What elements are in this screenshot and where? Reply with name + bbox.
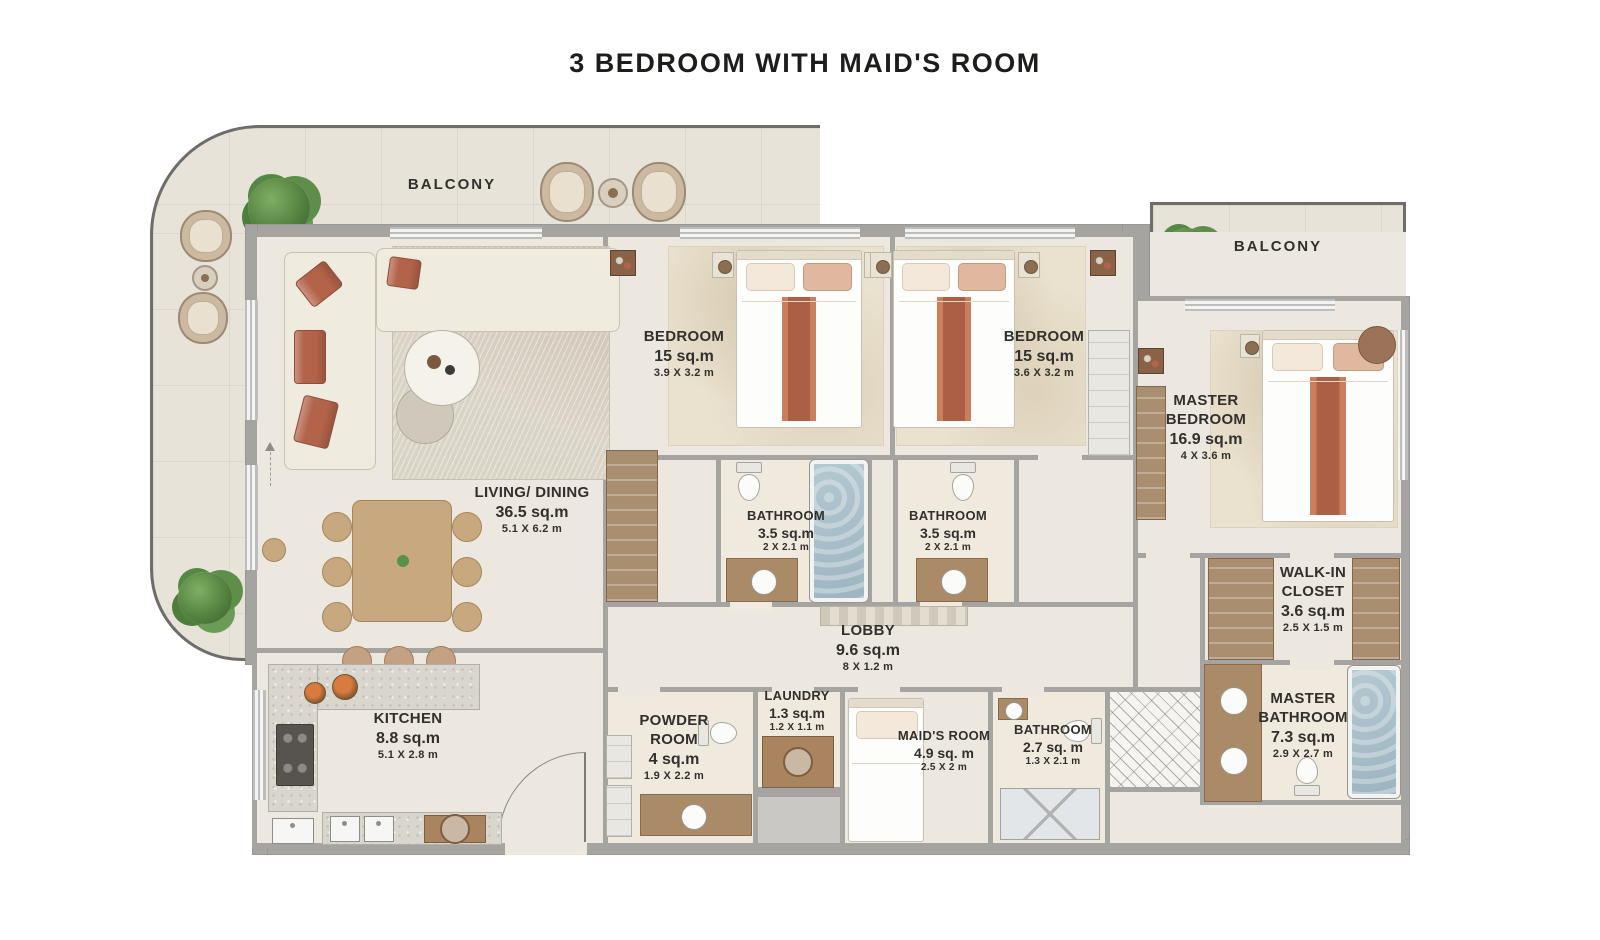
cushion bbox=[294, 330, 326, 384]
room-label-laundry: LAUNDRY1.3 sq.m1.2 X 1.1 m bbox=[764, 688, 829, 733]
nightstand bbox=[712, 252, 734, 278]
room-label-maids-bathroom: BATHROOM2.7 sq. m1.3 X 2.1 m bbox=[1014, 722, 1092, 767]
small-sink bbox=[998, 698, 1028, 720]
cabinet bbox=[1088, 330, 1130, 456]
dining-chair bbox=[322, 602, 352, 632]
wicker-chair bbox=[632, 162, 686, 222]
dining-chair bbox=[322, 557, 352, 587]
door-opening bbox=[618, 685, 660, 697]
wicker-chair bbox=[540, 162, 594, 222]
dining-chair bbox=[452, 602, 482, 632]
window bbox=[245, 300, 258, 420]
exit-arrow-icon bbox=[265, 442, 275, 451]
room-label-maids: MAID'S ROOM4.9 sq. m2.5 X 2 m bbox=[898, 728, 990, 773]
shelf-decor bbox=[1138, 348, 1164, 374]
double-bed-1 bbox=[736, 250, 862, 428]
utility-cabinet bbox=[606, 785, 632, 837]
toilet-icon bbox=[736, 462, 762, 500]
room-label-bedroom-2: BEDROOM15 sq.m3.6 X 3.2 m bbox=[1004, 328, 1084, 379]
appliance bbox=[272, 818, 314, 844]
vanity bbox=[916, 558, 988, 602]
room-label-lobby: LOBBY9.6 sq.m8 X 1.2 m bbox=[836, 622, 900, 673]
nightstand bbox=[1018, 252, 1040, 278]
service-shaft-hatch bbox=[1105, 687, 1205, 792]
dining-chair bbox=[452, 557, 482, 587]
window bbox=[905, 227, 1075, 239]
room-label-balcony-main: BALCONY bbox=[408, 176, 496, 195]
round-armchair bbox=[1358, 326, 1396, 364]
shelf-decor bbox=[610, 250, 636, 276]
floor-plan: 3 BEDROOM WITH MAID'S ROOM bbox=[0, 0, 1600, 940]
vanity bbox=[726, 558, 798, 602]
cooktop bbox=[276, 724, 314, 786]
room-label-bedroom-1: BEDROOM15 sq.m3.9 X 3.2 m bbox=[644, 328, 724, 379]
room-label-kitchen: KITCHEN8.8 sq.m5.1 X 2.8 m bbox=[374, 710, 443, 761]
room-label-walk-in-closet: WALK-IN CLOSET3.6 sq.m2.5 X 1.5 m bbox=[1258, 564, 1368, 634]
window bbox=[390, 227, 542, 239]
plant-icon bbox=[178, 572, 232, 624]
centerpiece bbox=[397, 555, 409, 567]
toilet-icon bbox=[950, 462, 976, 500]
shower-tray bbox=[1000, 788, 1100, 840]
fruit-bowl bbox=[332, 674, 358, 700]
room-label-master-bathroom: MASTER BATHROOM7.3 sq.m2.9 X 2.7 m bbox=[1243, 690, 1363, 760]
hall-master-wing bbox=[1133, 553, 1205, 692]
wardrobe bbox=[606, 450, 658, 602]
window bbox=[245, 465, 258, 570]
door-opening bbox=[1002, 685, 1044, 697]
cutting-board bbox=[424, 815, 486, 843]
room-label-master-bedroom: MASTER BEDROOM16.9 sq.m4 X 3.6 m bbox=[1151, 392, 1261, 462]
laundry-closet bbox=[753, 792, 845, 848]
fruit-bowl bbox=[304, 682, 326, 704]
room-label-bathroom-1: BATHROOM3.5 sq.m2 X 2.1 m bbox=[747, 508, 825, 553]
tray-item bbox=[445, 365, 455, 375]
exit-path-line bbox=[270, 452, 271, 486]
wicker-chair bbox=[180, 210, 232, 262]
floor-lamp bbox=[262, 538, 286, 562]
room-label-living-dining: LIVING/ DINING36.5 sq.m5.1 X 6.2 m bbox=[474, 484, 589, 535]
kitchen-sink bbox=[330, 816, 360, 842]
wicker-chair bbox=[178, 292, 228, 344]
vanity bbox=[640, 794, 752, 836]
dining-table bbox=[352, 500, 452, 622]
dining-chair bbox=[322, 512, 352, 542]
toilet-icon bbox=[1294, 758, 1320, 796]
window bbox=[680, 227, 860, 239]
cushion bbox=[386, 256, 422, 290]
double-bed-2 bbox=[893, 250, 1015, 428]
kitchen-sink bbox=[364, 816, 394, 842]
door-opening bbox=[1146, 551, 1190, 563]
coffee-table bbox=[404, 330, 480, 406]
door-opening bbox=[1290, 551, 1334, 563]
nightstand bbox=[1240, 334, 1260, 358]
window-balcony-door bbox=[1185, 299, 1335, 311]
washing-machine bbox=[762, 736, 834, 788]
room-label-powder: POWDER ROOM4 sq.m1.9 X 2.2 m bbox=[628, 712, 720, 782]
window bbox=[253, 690, 266, 800]
door-opening bbox=[1290, 658, 1334, 670]
tray-item bbox=[427, 355, 441, 369]
door-opening bbox=[858, 685, 900, 697]
nightstand bbox=[870, 252, 892, 278]
door-opening bbox=[1038, 453, 1082, 465]
patio-table bbox=[598, 178, 628, 208]
room-label-bathroom-2: BATHROOM3.5 sq.m2 X 2.1 m bbox=[909, 508, 987, 553]
page-title: 3 BEDROOM WITH MAID'S ROOM bbox=[569, 48, 1040, 79]
shelf-decor bbox=[1090, 250, 1116, 276]
side-table bbox=[192, 265, 218, 291]
room-label-balcony-master: BALCONY bbox=[1234, 238, 1322, 257]
